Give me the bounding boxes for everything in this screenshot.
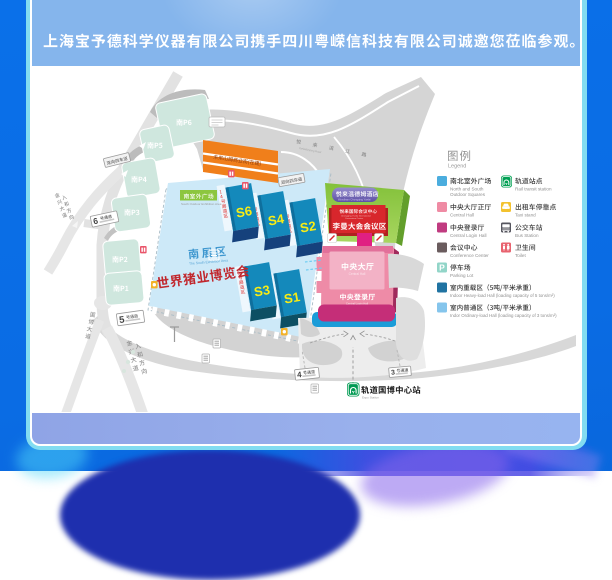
svg-text:Central Hall: Central Hall (450, 213, 474, 218)
svg-text:Rail transit station: Rail transit station (515, 187, 552, 192)
svg-text:Taxi stand: Taxi stand (515, 213, 536, 218)
svg-text:Toilet: Toilet (515, 253, 526, 258)
svg-text:Central Login Hall: Central Login Hall (450, 233, 487, 238)
svg-text:Indor Ordinary-load Hall (load: Indor Ordinary-load Hall (loading capaci… (450, 313, 557, 318)
svg-text:Convention Center: Convention Center (345, 217, 364, 220)
svg-text:Central Hall: Central Hall (349, 272, 366, 276)
svg-text:Chongqing Yuelai International: Chongqing Yuelai International (341, 214, 371, 217)
svg-text:S2: S2 (299, 218, 317, 236)
svg-text:Outdoor Squares: Outdoor Squares (450, 192, 486, 197)
svg-text:Conference Center: Conference Center (450, 253, 489, 258)
svg-text:South Outdoor Exhibition Area: South Outdoor Exhibition Area (181, 202, 222, 206)
svg-text:Parking Lot: Parking Lot (450, 273, 474, 278)
svg-text:S1: S1 (283, 289, 301, 307)
svg-text:North and South: North and South (450, 187, 484, 192)
svg-text:Indoor Heavy-load Hall (loadin: Indoor Heavy-load Hall (loading capacity… (450, 293, 555, 298)
svg-text:Wyndham Chongqing Yuelai: Wyndham Chongqing Yuelai (338, 197, 371, 201)
svg-text:Bus Station: Bus Station (515, 233, 539, 238)
svg-text:Expo Station: Expo Station (362, 395, 379, 399)
svg-text:S3: S3 (253, 282, 271, 300)
svg-text:P: P (439, 263, 445, 273)
svg-text:3: 3 (391, 369, 396, 376)
svg-text:Legend: Legend (448, 164, 466, 170)
svg-text:S6: S6 (235, 203, 253, 221)
